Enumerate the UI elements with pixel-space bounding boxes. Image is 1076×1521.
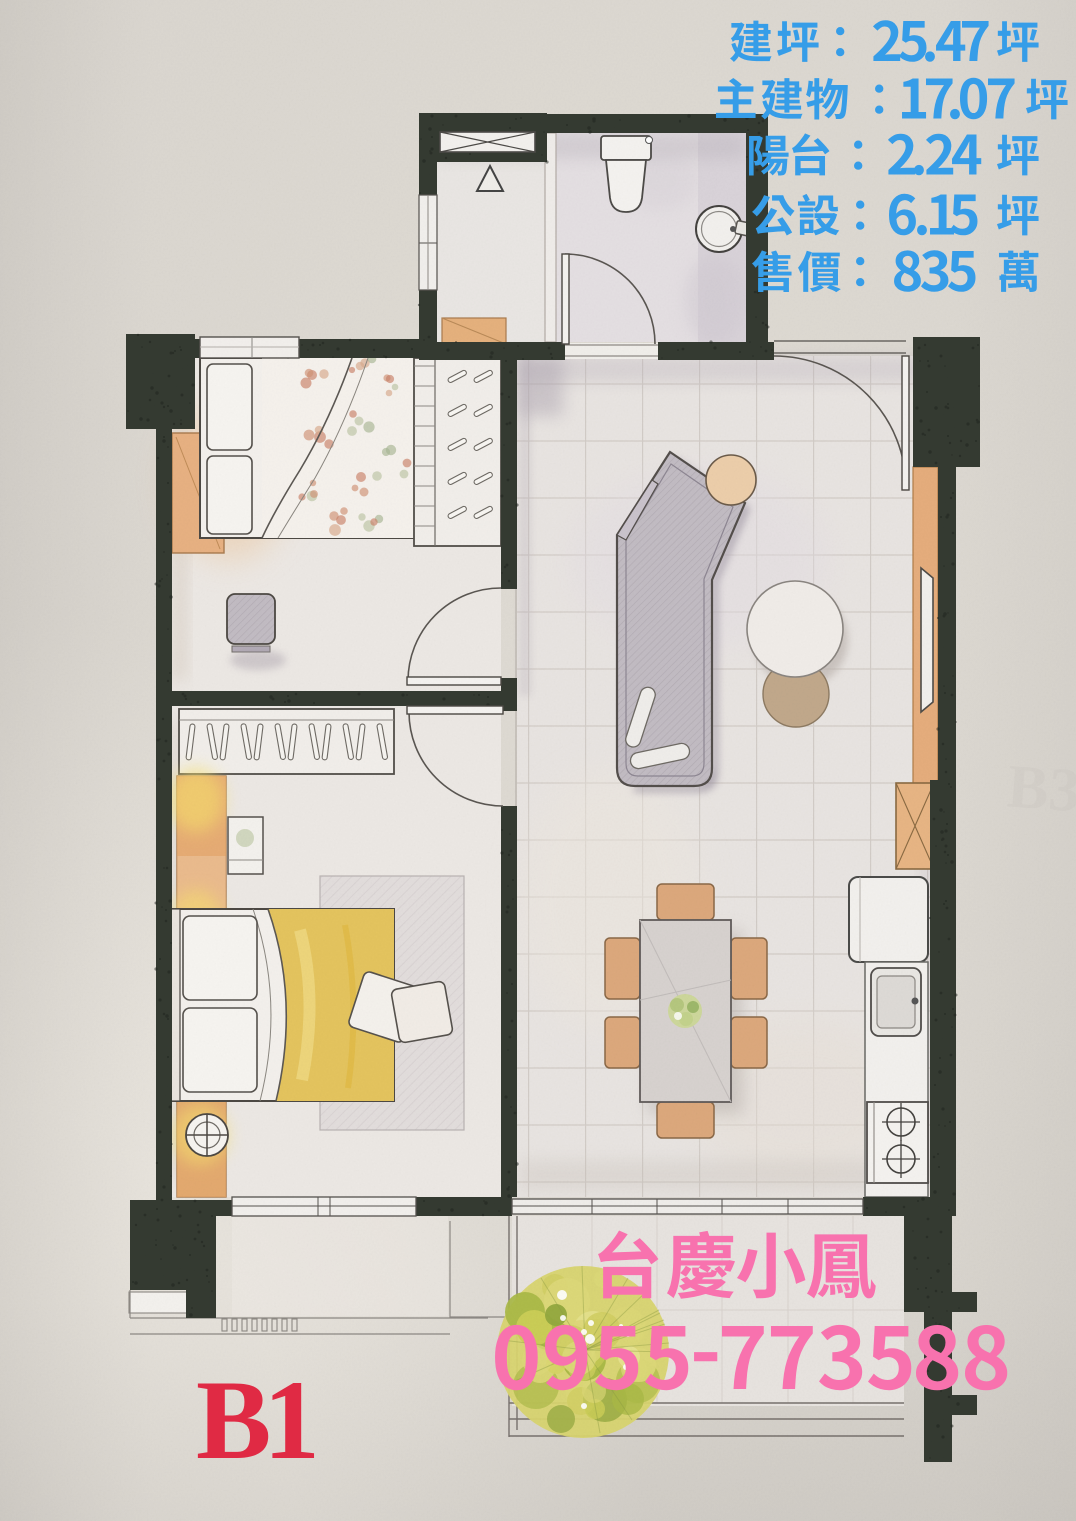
svg-text:B3: B3 [1005,753,1076,826]
svg-text:B1: B1 [196,1358,314,1483]
